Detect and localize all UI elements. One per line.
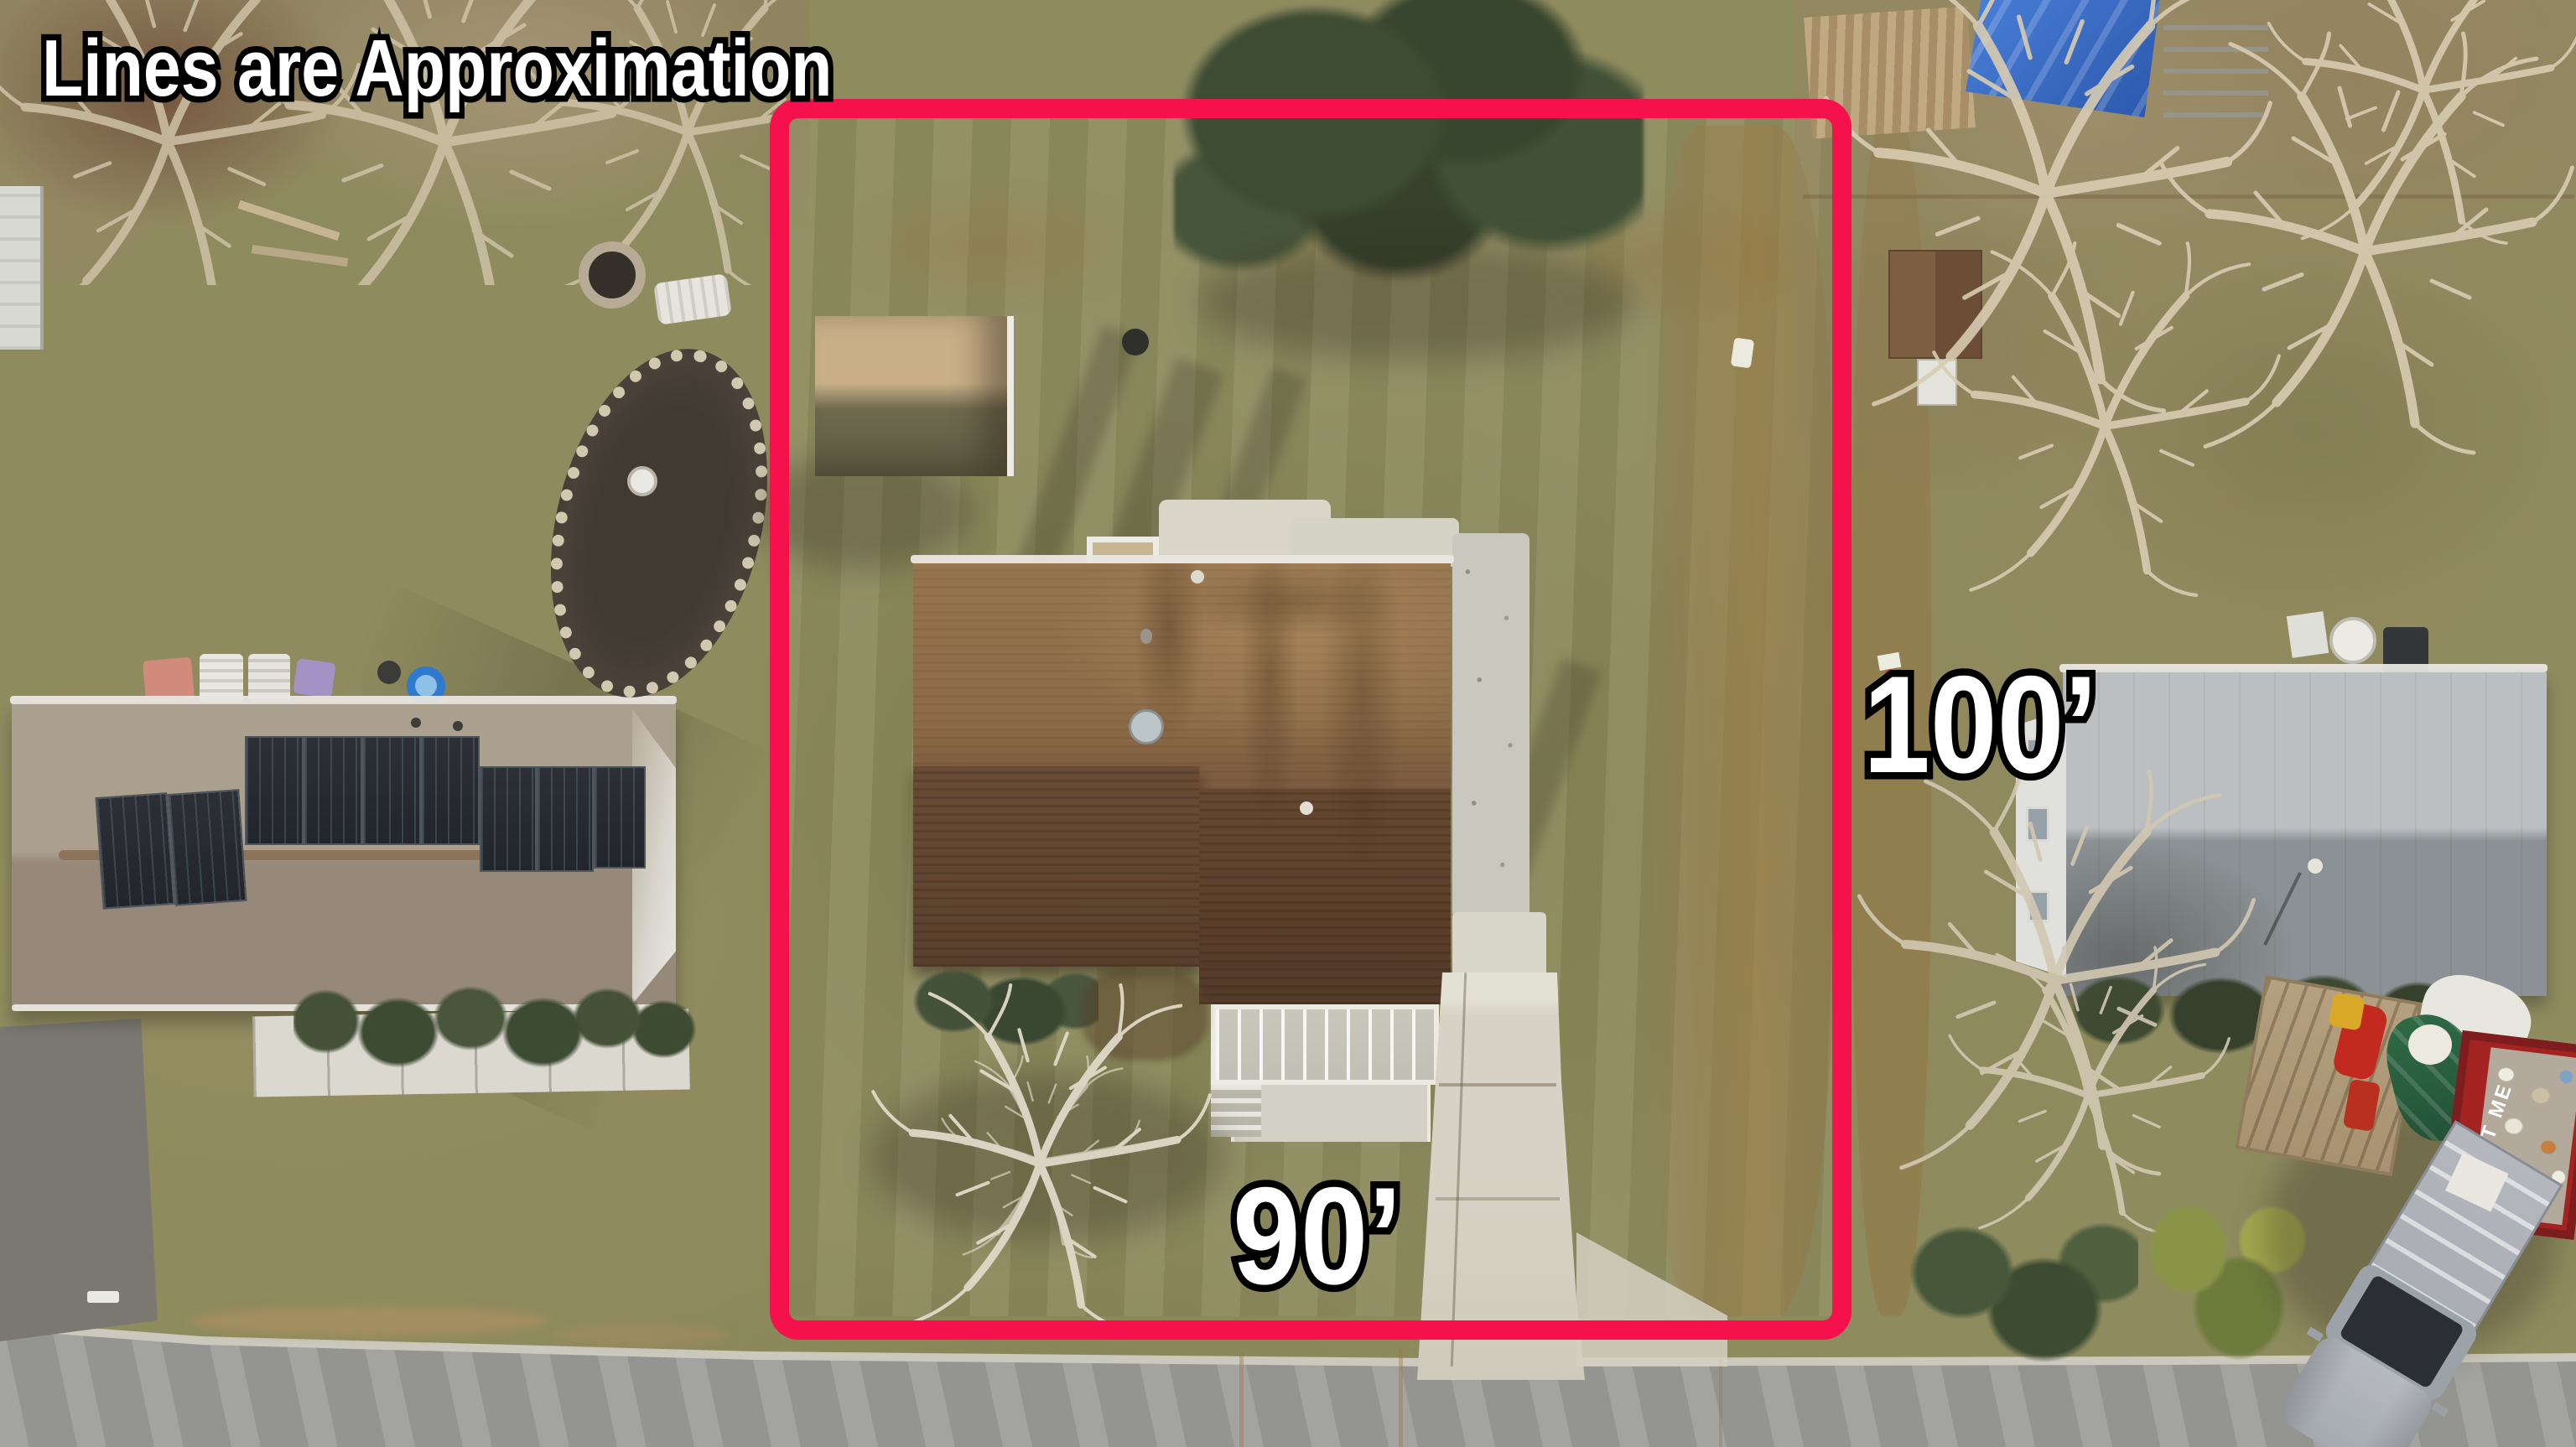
white-sack	[2408, 1024, 2452, 1065]
solar-panel	[95, 792, 174, 910]
solar-panel	[362, 736, 421, 845]
ac-unit-white-round	[2329, 617, 2376, 664]
truck-mirror	[2306, 1327, 2324, 1342]
solar-panel	[167, 789, 247, 906]
leaf-pile-road-edge	[553, 1325, 730, 1345]
foundation-bushes	[293, 972, 696, 1081]
truck-mirror	[2432, 1402, 2449, 1417]
shrubs-green	[1903, 1199, 2138, 1383]
property-boundary-line	[770, 99, 1851, 1340]
leaf-pile-road-edge	[189, 1306, 549, 1336]
solar-panel	[421, 736, 480, 845]
aerial-drone-photo: RENT ME Lines are Approximation 100’ 90’	[0, 0, 2576, 1447]
bird-bath	[627, 466, 657, 496]
grill	[377, 661, 401, 684]
lot-frontage-label: 90’	[1233, 1167, 1402, 1305]
lot-depth-label: 100’	[1863, 656, 2097, 794]
roof-vent	[453, 721, 463, 731]
roof-pipe	[2308, 858, 2323, 874]
white-box	[2287, 611, 2329, 658]
solar-panel	[304, 736, 362, 845]
right-house-gutter	[2059, 664, 2547, 672]
basketball-backboard	[87, 1291, 119, 1303]
bare-tree-branches	[1794, 0, 2576, 637]
gear-red	[2343, 1079, 2381, 1132]
solar-panel	[594, 766, 646, 869]
white-storage-shed	[0, 186, 44, 350]
solar-panel	[245, 736, 304, 845]
solar-panel	[537, 766, 594, 872]
left-house-gutter	[10, 696, 677, 704]
disclaimer-text: Lines are Approximation	[42, 29, 832, 109]
fire-pit	[579, 241, 646, 309]
gear-yellow	[2328, 993, 2365, 1031]
road-expansion-joint	[1399, 1348, 1403, 1447]
solar-panel	[480, 766, 537, 872]
roof-vent	[411, 718, 421, 728]
patio-towel-purple	[293, 658, 335, 698]
